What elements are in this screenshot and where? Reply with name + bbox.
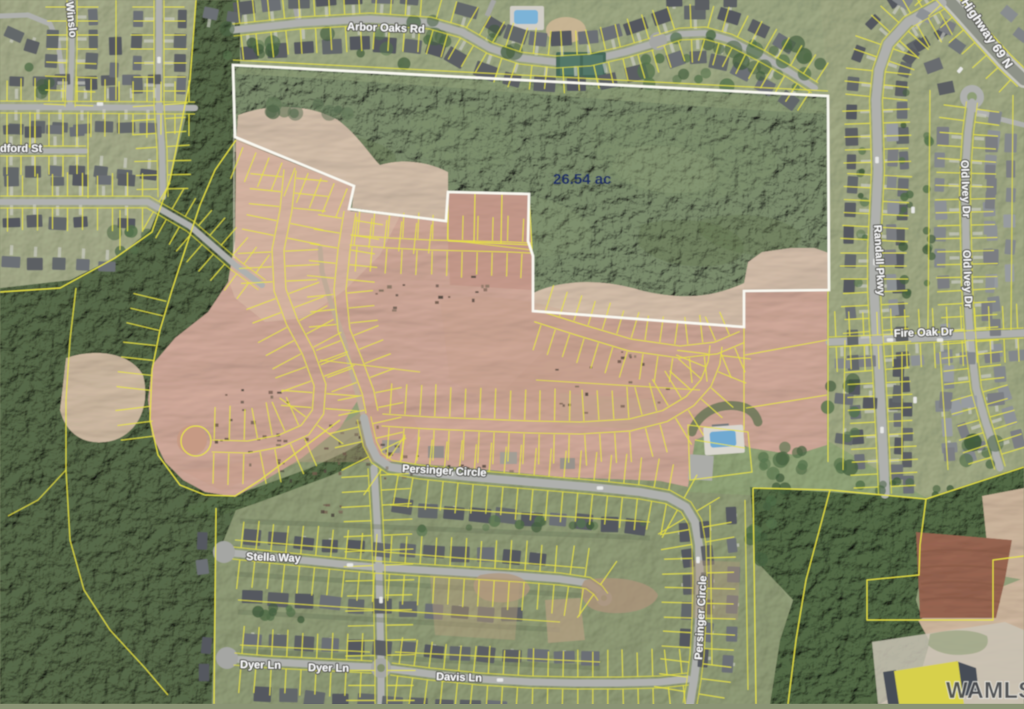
svg-text:Dyer Ln: Dyer Ln: [308, 662, 349, 675]
svg-text:dford St: dford St: [0, 143, 42, 155]
svg-text:WAMLS: WAMLS: [946, 677, 1024, 703]
svg-text:Fire Oak Dr: Fire Oak Dr: [894, 326, 954, 340]
svg-text:Old Ivey Dr: Old Ivey Dr: [960, 250, 974, 309]
svg-text:Davis Ln: Davis Ln: [436, 671, 483, 685]
svg-text:Dyer Ln: Dyer Ln: [240, 659, 281, 672]
svg-text:Old Ivey Dr: Old Ivey Dr: [958, 160, 972, 219]
svg-text:Stella Way: Stella Way: [246, 551, 302, 565]
svg-text:26.54 ac: 26.54 ac: [553, 171, 611, 188]
